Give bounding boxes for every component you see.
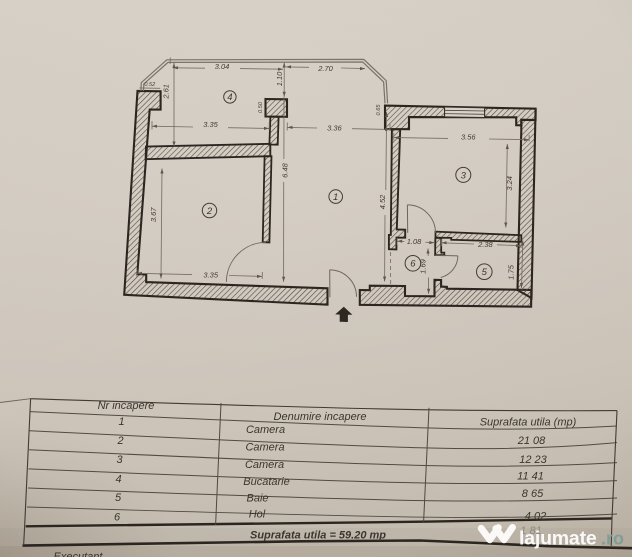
svg-text:12 23: 12 23 <box>519 454 547 466</box>
svg-text:3.56: 3.56 <box>461 133 476 142</box>
svg-text:2.38: 2.38 <box>477 240 493 249</box>
svg-text:3.36: 3.36 <box>327 124 342 133</box>
svg-text:3.67: 3.67 <box>149 207 158 222</box>
svg-text:5: 5 <box>115 492 122 504</box>
svg-text:8 65: 8 65 <box>522 488 544 500</box>
svg-text:Camera: Camera <box>245 442 284 454</box>
svg-text:0.50: 0.50 <box>258 101 264 113</box>
svg-text:Hol: Hol <box>249 509 266 521</box>
svg-text:4: 4 <box>115 474 121 486</box>
svg-text:1.10: 1.10 <box>275 71 284 86</box>
svg-text:.ro: .ro <box>601 529 624 549</box>
svg-text:4: 4 <box>227 92 232 103</box>
svg-text:3.24: 3.24 <box>505 176 514 191</box>
svg-text:21 08: 21 08 <box>517 435 546 447</box>
svg-text:3: 3 <box>461 170 467 181</box>
svg-text:Baie: Baie <box>246 493 268 505</box>
svg-text:2: 2 <box>116 435 123 447</box>
svg-text:Executant: Executant <box>54 551 104 557</box>
svg-text:0.52: 0.52 <box>144 82 156 88</box>
svg-text:6.48: 6.48 <box>281 162 290 177</box>
svg-text:4 02: 4 02 <box>525 511 546 523</box>
svg-text:2.70: 2.70 <box>317 64 333 73</box>
svg-text:3: 3 <box>116 454 123 466</box>
svg-text:4.52: 4.52 <box>378 194 387 209</box>
svg-text:Suprafata utila = 59.20 mp: Suprafata utila = 59.20 mp <box>250 530 386 542</box>
svg-text:3.04: 3.04 <box>215 62 230 71</box>
svg-text:11 41: 11 41 <box>517 471 544 483</box>
svg-text:5: 5 <box>482 267 488 278</box>
svg-text:Nr incapere: Nr incapere <box>98 400 155 412</box>
svg-text:Denumire incapere: Denumire incapere <box>274 411 367 423</box>
svg-text:6: 6 <box>114 512 121 524</box>
svg-text:Bucatarie: Bucatarie <box>243 476 289 488</box>
svg-text:1: 1 <box>118 416 124 428</box>
svg-text:Suprafata utila (mp): Suprafata utila (mp) <box>480 417 577 429</box>
svg-text:6: 6 <box>410 259 416 270</box>
svg-text:2: 2 <box>206 206 213 217</box>
svg-text:lajumate: lajumate <box>519 528 597 550</box>
svg-text:1.08: 1.08 <box>407 237 422 246</box>
svg-text:Camera: Camera <box>246 424 285 436</box>
svg-text:0.65: 0.65 <box>376 104 382 116</box>
svg-text:Camera: Camera <box>245 459 284 471</box>
svg-text:3.35: 3.35 <box>203 270 218 279</box>
svg-text:2.61: 2.61 <box>161 84 170 100</box>
svg-text:1: 1 <box>333 192 338 203</box>
svg-text:3.35: 3.35 <box>203 120 218 129</box>
svg-text:1.75: 1.75 <box>507 264 516 279</box>
